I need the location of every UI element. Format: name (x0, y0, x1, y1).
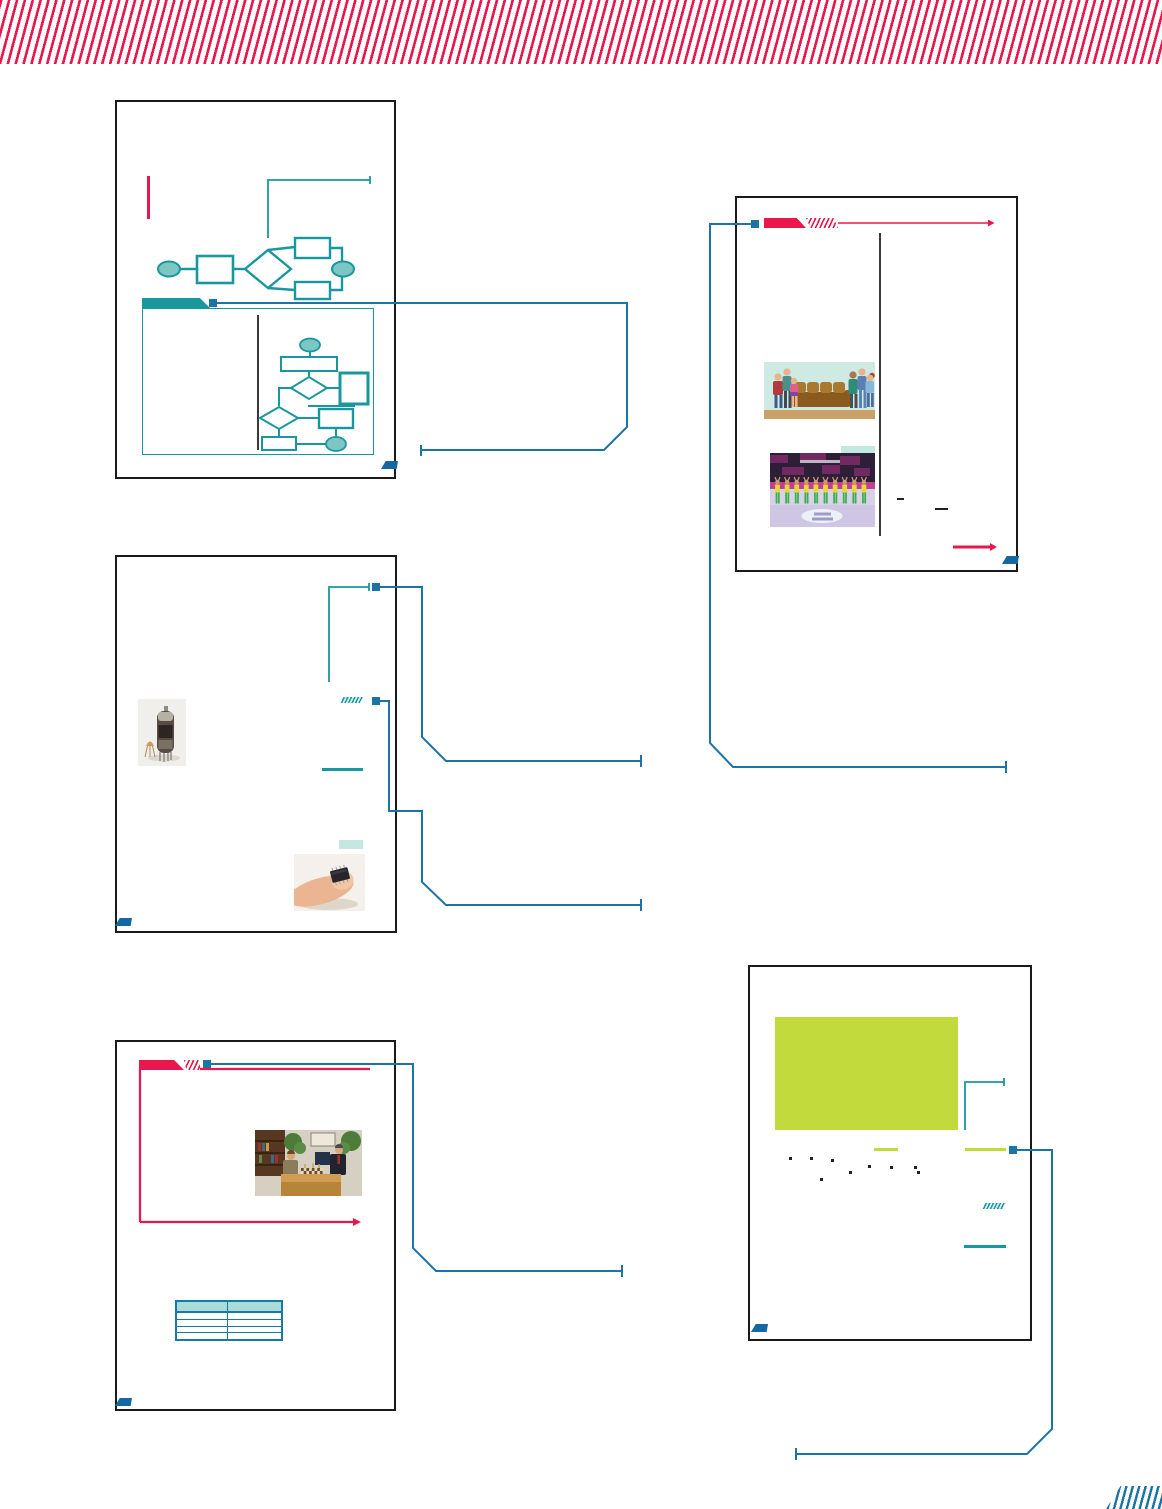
end-oval (332, 262, 354, 277)
process-square (340, 373, 368, 404)
sports-team-photo (770, 453, 875, 527)
picture-frame (311, 1133, 335, 1146)
highlight-rule (841, 446, 875, 453)
highlight-rule (339, 840, 363, 849)
text-dot (914, 1166, 917, 1169)
chartreuse-rule (965, 1148, 1006, 1151)
teal-rule (964, 1245, 1006, 1248)
text-dot (890, 1166, 893, 1169)
page-number-marker (115, 918, 132, 926)
page-mockup-5 (748, 965, 1032, 1341)
process-rect (281, 357, 337, 371)
callout-connector-d (372, 697, 641, 911)
bottom-right-stripe-block (1106, 1486, 1162, 1509)
table-row (177, 1319, 281, 1326)
page-mockup-1 (115, 100, 396, 479)
text-dot (810, 1157, 813, 1160)
family-sofa-illustration (764, 362, 875, 419)
process-rect-2 (319, 409, 353, 428)
top-stripe-band (0, 0, 1162, 64)
chess-match-photo (255, 1130, 362, 1196)
text-dot (820, 1178, 823, 1181)
table-top (281, 1174, 341, 1182)
detail-flowchart (257, 334, 373, 456)
text-dash (897, 498, 904, 500)
column-divider (879, 233, 881, 536)
chartreuse-rule (874, 1148, 898, 1151)
red-accent-rule (147, 176, 150, 219)
red-banner-hatch (806, 218, 838, 228)
page-mockup-4 (115, 1040, 396, 1411)
table-column-divider (227, 1302, 229, 1339)
teal-hatch-tab (340, 697, 363, 703)
branch-rect-bottom (295, 282, 330, 299)
text-dot (789, 1157, 792, 1160)
page-number-marker (751, 1324, 768, 1332)
decision-diamond-1 (291, 377, 327, 399)
page-number-marker (381, 461, 398, 469)
end-oval (326, 437, 346, 451)
chess-match-art (255, 1130, 362, 1196)
start-oval (300, 339, 320, 352)
sports-team-art (770, 453, 875, 527)
callout-connector-c (372, 583, 641, 767)
decision-diamond (245, 250, 291, 288)
text-dot (868, 1165, 871, 1168)
text-dot (849, 1171, 852, 1174)
microchip-finger-photo (294, 854, 365, 911)
decision-diamond-2 (260, 407, 298, 429)
page-number-marker (115, 1398, 132, 1406)
monitor (315, 1152, 330, 1165)
teal-hatch-tab (982, 1203, 1006, 1209)
page-mockup-2 (735, 196, 1018, 572)
table-header-row (177, 1302, 281, 1313)
red-banner (139, 1060, 184, 1070)
table-row (177, 1332, 281, 1339)
process-rect-3 (262, 437, 296, 450)
layout-canvas (0, 0, 1162, 1509)
red-banner-hatch (184, 1060, 201, 1070)
simple-flowchart (153, 231, 363, 309)
data-table (175, 1300, 283, 1341)
red-banner (764, 218, 806, 228)
branch-rect-top (295, 238, 330, 258)
vacuum-tube-art (138, 699, 186, 766)
teal-rule (322, 768, 363, 771)
table-row (177, 1326, 281, 1333)
text-dash (935, 508, 948, 510)
teal-banner-tab (142, 298, 210, 308)
text-dot (831, 1159, 834, 1162)
process-rect (197, 256, 233, 283)
start-oval (158, 262, 180, 277)
vacuum-tube-photo (138, 699, 186, 766)
microchip-finger-art (294, 854, 365, 911)
family-sofa-art (764, 362, 875, 419)
green-panel (775, 1017, 958, 1130)
text-dot (917, 1171, 920, 1174)
page-number-marker (1002, 556, 1019, 564)
page-mockup-3 (115, 555, 397, 933)
